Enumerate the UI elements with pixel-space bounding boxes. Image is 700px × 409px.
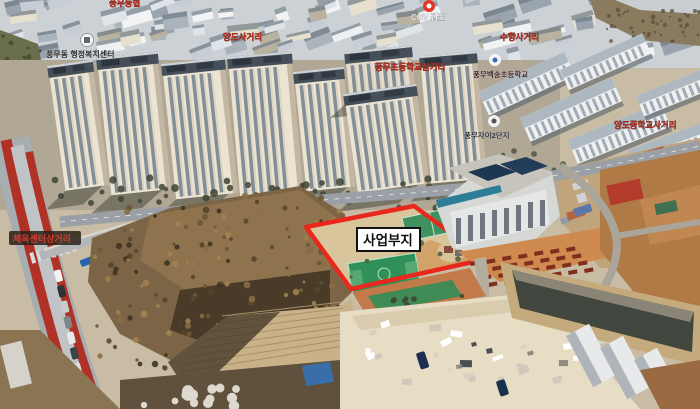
svg-text:양도사거리: 양도사거리 [223, 32, 262, 42]
svg-text:사업부지: 사업부지 [363, 233, 413, 248]
svg-text:양도중학교사거리: 양도중학교사거리 [614, 120, 677, 130]
svg-text:CGV 김포: CGV 김포 [411, 12, 446, 22]
svg-text:풍무동 행정복지센터: 풍무동 행정복지센터 [46, 49, 114, 59]
svg-text:풍무초등학교삼거리: 풍무초등학교삼거리 [375, 62, 445, 72]
svg-text:체육센터삼거리: 체육센터삼거리 [13, 233, 71, 244]
svg-text:풍무백송초등학교: 풍무백송초등학교 [473, 69, 528, 79]
svg-text:풍무농협: 풍무농협 [109, 0, 140, 8]
svg-text:수향사거리: 수향사거리 [500, 32, 539, 42]
svg-text:풍무자이2단지: 풍무자이2단지 [464, 130, 510, 140]
